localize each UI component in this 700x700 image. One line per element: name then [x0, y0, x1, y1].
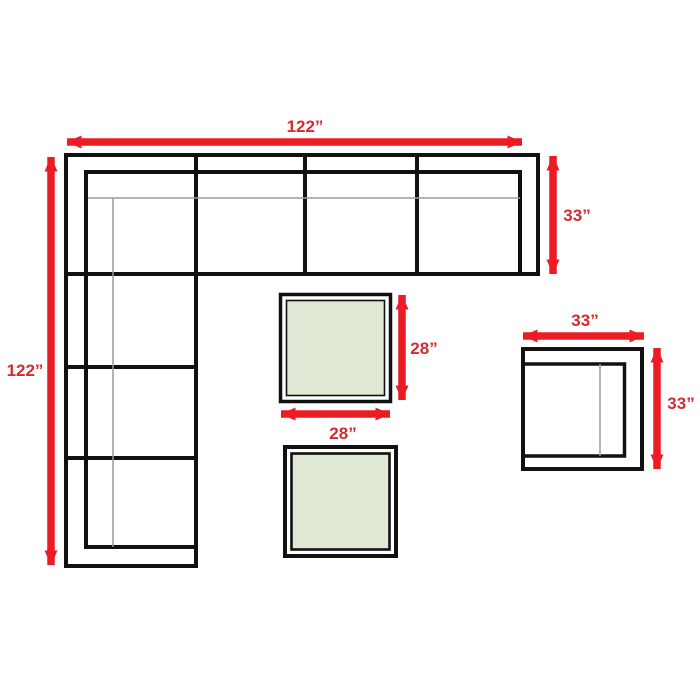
chair-width-label: 33” — [571, 311, 598, 330]
chair-height-label: 33” — [667, 394, 694, 413]
coffee-table-1-glass-top — [287, 301, 385, 396]
sofa-height-label: 122” — [7, 361, 44, 380]
coffee-table-height-label: 28” — [410, 339, 437, 358]
armless-chair — [523, 349, 642, 469]
furniture-dimension-diagram: 122” 122” 33” 28” 28” 33” 33” — [0, 0, 700, 700]
coffee-table-2-glass-top — [292, 454, 390, 550]
chair-seat-lines — [523, 364, 625, 456]
coffee-table-2 — [285, 447, 396, 556]
sofa-depth-label: 33” — [563, 206, 590, 225]
coffee-table-1 — [281, 295, 391, 402]
diagram-svg: 122” 122” 33” 28” 28” 33” 33” — [0, 0, 700, 700]
sofa-width-label: 122” — [287, 117, 324, 136]
coffee-table-width-label: 28” — [329, 424, 356, 443]
